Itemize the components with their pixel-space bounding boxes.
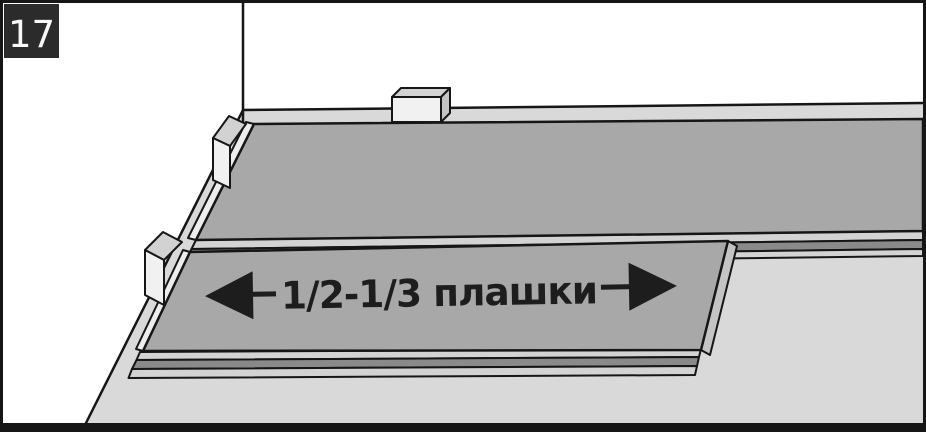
front-strip-light-lower [129, 366, 698, 378]
bottom-bar [2, 423, 924, 430]
plank-row-1 [188, 119, 923, 240]
plank-row-1-surface [196, 119, 923, 240]
spacer-front-face [145, 250, 164, 305]
step-badge: 17 [4, 4, 59, 58]
flooring-diagram: 1/2-1/3 плашки 17 [0, 0, 926, 432]
spacer-front-face [392, 97, 441, 122]
spacer-block-back-wall [392, 88, 450, 122]
right-arrow-tail [601, 287, 632, 288]
step-number: 17 [8, 13, 55, 56]
manual-step-figure: 1/2-1/3 плашки 17 [0, 0, 926, 432]
annotation-label: 1/2-1/3 плашки [281, 268, 598, 318]
spacer-front-face [213, 138, 230, 188]
plank-row-2-front-edge [129, 349, 702, 378]
